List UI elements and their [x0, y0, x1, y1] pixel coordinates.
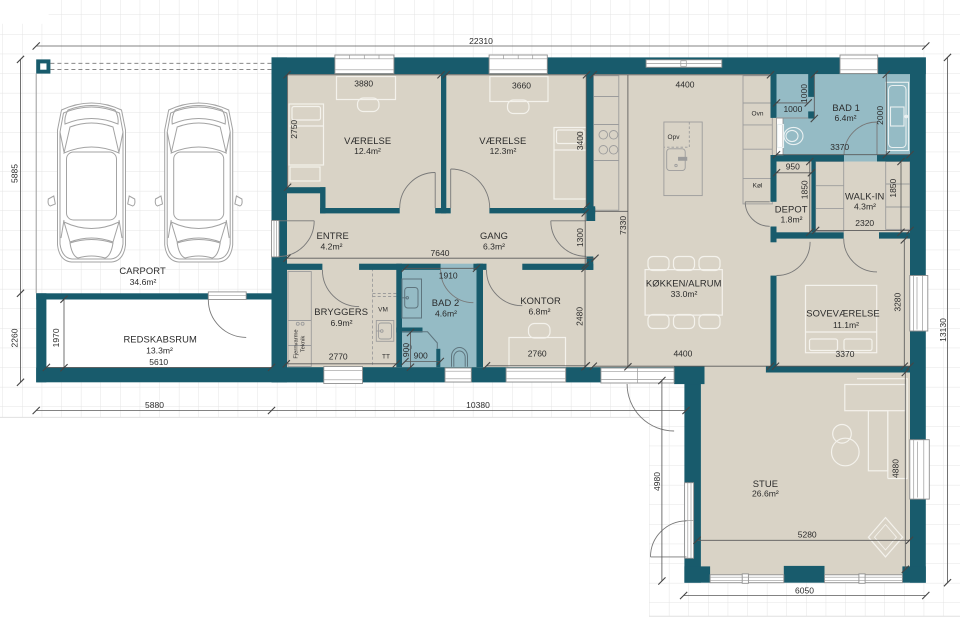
- svg-text:34.6m²: 34.6m²: [130, 277, 157, 287]
- svg-text:VÆRELSE: VÆRELSE: [479, 135, 526, 146]
- svg-text:1850: 1850: [888, 178, 898, 197]
- svg-text:3370: 3370: [836, 349, 855, 359]
- svg-text:SOVEVÆRELSE: SOVEVÆRELSE: [806, 308, 880, 319]
- svg-text:3400: 3400: [575, 131, 585, 150]
- svg-text:4.6m²: 4.6m²: [435, 309, 457, 319]
- svg-text:5880: 5880: [145, 400, 164, 410]
- svg-text:3370: 3370: [830, 142, 849, 152]
- svg-text:33.0m²: 33.0m²: [671, 289, 698, 299]
- svg-text:VÆRELSE: VÆRELSE: [344, 135, 391, 146]
- svg-text:BAD 2: BAD 2: [432, 297, 460, 308]
- svg-text:Opv: Opv: [668, 134, 681, 141]
- svg-text:GANG: GANG: [480, 230, 508, 241]
- svg-text:6.4m²: 6.4m²: [835, 113, 857, 123]
- svg-text:6.3m²: 6.3m²: [483, 241, 505, 251]
- svg-text:KONTOR: KONTOR: [520, 295, 561, 306]
- svg-text:Køl: Køl: [753, 183, 763, 190]
- svg-text:REDSKABSRUM: REDSKABSRUM: [123, 333, 197, 344]
- svg-text:1910: 1910: [439, 270, 458, 280]
- svg-text:6.8m²: 6.8m²: [529, 306, 551, 316]
- svg-text:11.1m²: 11.1m²: [833, 320, 859, 330]
- svg-text:2260: 2260: [10, 328, 20, 347]
- svg-text:7640: 7640: [431, 248, 450, 258]
- svg-text:13.3m²: 13.3m²: [146, 346, 173, 356]
- svg-text:2760: 2760: [528, 348, 547, 358]
- svg-text:3880: 3880: [354, 79, 373, 89]
- svg-text:1300: 1300: [575, 228, 585, 247]
- svg-text:ENTRE: ENTRE: [317, 230, 349, 241]
- svg-text:5280: 5280: [798, 529, 817, 539]
- svg-text:BAD 1: BAD 1: [832, 102, 860, 113]
- svg-text:1850: 1850: [799, 180, 809, 199]
- svg-text:950: 950: [786, 162, 800, 172]
- svg-text:4880: 4880: [890, 459, 900, 478]
- svg-text:STUE: STUE: [753, 478, 778, 489]
- svg-text:6.9m²: 6.9m²: [331, 318, 353, 328]
- svg-text:7330: 7330: [618, 216, 628, 235]
- svg-text:12.4m²: 12.4m²: [354, 146, 381, 156]
- svg-text:Fjernvarme: Fjernvarme: [294, 329, 300, 358]
- svg-text:22310: 22310: [469, 36, 493, 46]
- svg-text:13130: 13130: [938, 318, 948, 342]
- svg-text:TT: TT: [382, 354, 390, 361]
- svg-text:10380: 10380: [466, 400, 490, 410]
- svg-text:26.6m²: 26.6m²: [752, 489, 779, 499]
- svg-text:5610: 5610: [149, 357, 168, 367]
- svg-text:Teknik: Teknik: [301, 336, 307, 353]
- svg-text:1.8m²: 1.8m²: [781, 215, 803, 225]
- svg-text:KØKKEN/ALRUM: KØKKEN/ALRUM: [646, 278, 722, 289]
- svg-text:3660: 3660: [512, 81, 531, 91]
- svg-text:VM: VM: [378, 307, 388, 314]
- svg-text:BRYGGERS: BRYGGERS: [314, 306, 368, 317]
- svg-text:3280: 3280: [892, 292, 902, 311]
- svg-text:DEPOT: DEPOT: [775, 204, 808, 215]
- svg-text:Ovn: Ovn: [752, 111, 764, 118]
- svg-text:CARPORT: CARPORT: [119, 265, 166, 276]
- svg-text:4400: 4400: [673, 348, 692, 358]
- svg-text:2480: 2480: [574, 307, 584, 326]
- svg-text:1970: 1970: [51, 328, 61, 347]
- svg-text:4.3m²: 4.3m²: [854, 202, 876, 212]
- svg-text:6050: 6050: [795, 586, 814, 596]
- svg-text:4400: 4400: [676, 80, 695, 90]
- svg-text:2770: 2770: [329, 351, 348, 361]
- svg-text:5885: 5885: [10, 164, 20, 183]
- svg-text:900: 900: [414, 351, 428, 361]
- svg-text:1000: 1000: [799, 84, 809, 103]
- svg-text:900: 900: [401, 343, 411, 357]
- svg-text:2750: 2750: [289, 120, 299, 139]
- svg-text:2000: 2000: [875, 106, 885, 125]
- svg-text:2320: 2320: [855, 218, 874, 228]
- svg-text:WALK-IN: WALK-IN: [845, 191, 884, 202]
- svg-text:4.2m²: 4.2m²: [321, 241, 343, 251]
- svg-text:1000: 1000: [783, 104, 802, 114]
- svg-text:4980: 4980: [652, 472, 662, 491]
- svg-text:12.3m²: 12.3m²: [490, 146, 517, 156]
